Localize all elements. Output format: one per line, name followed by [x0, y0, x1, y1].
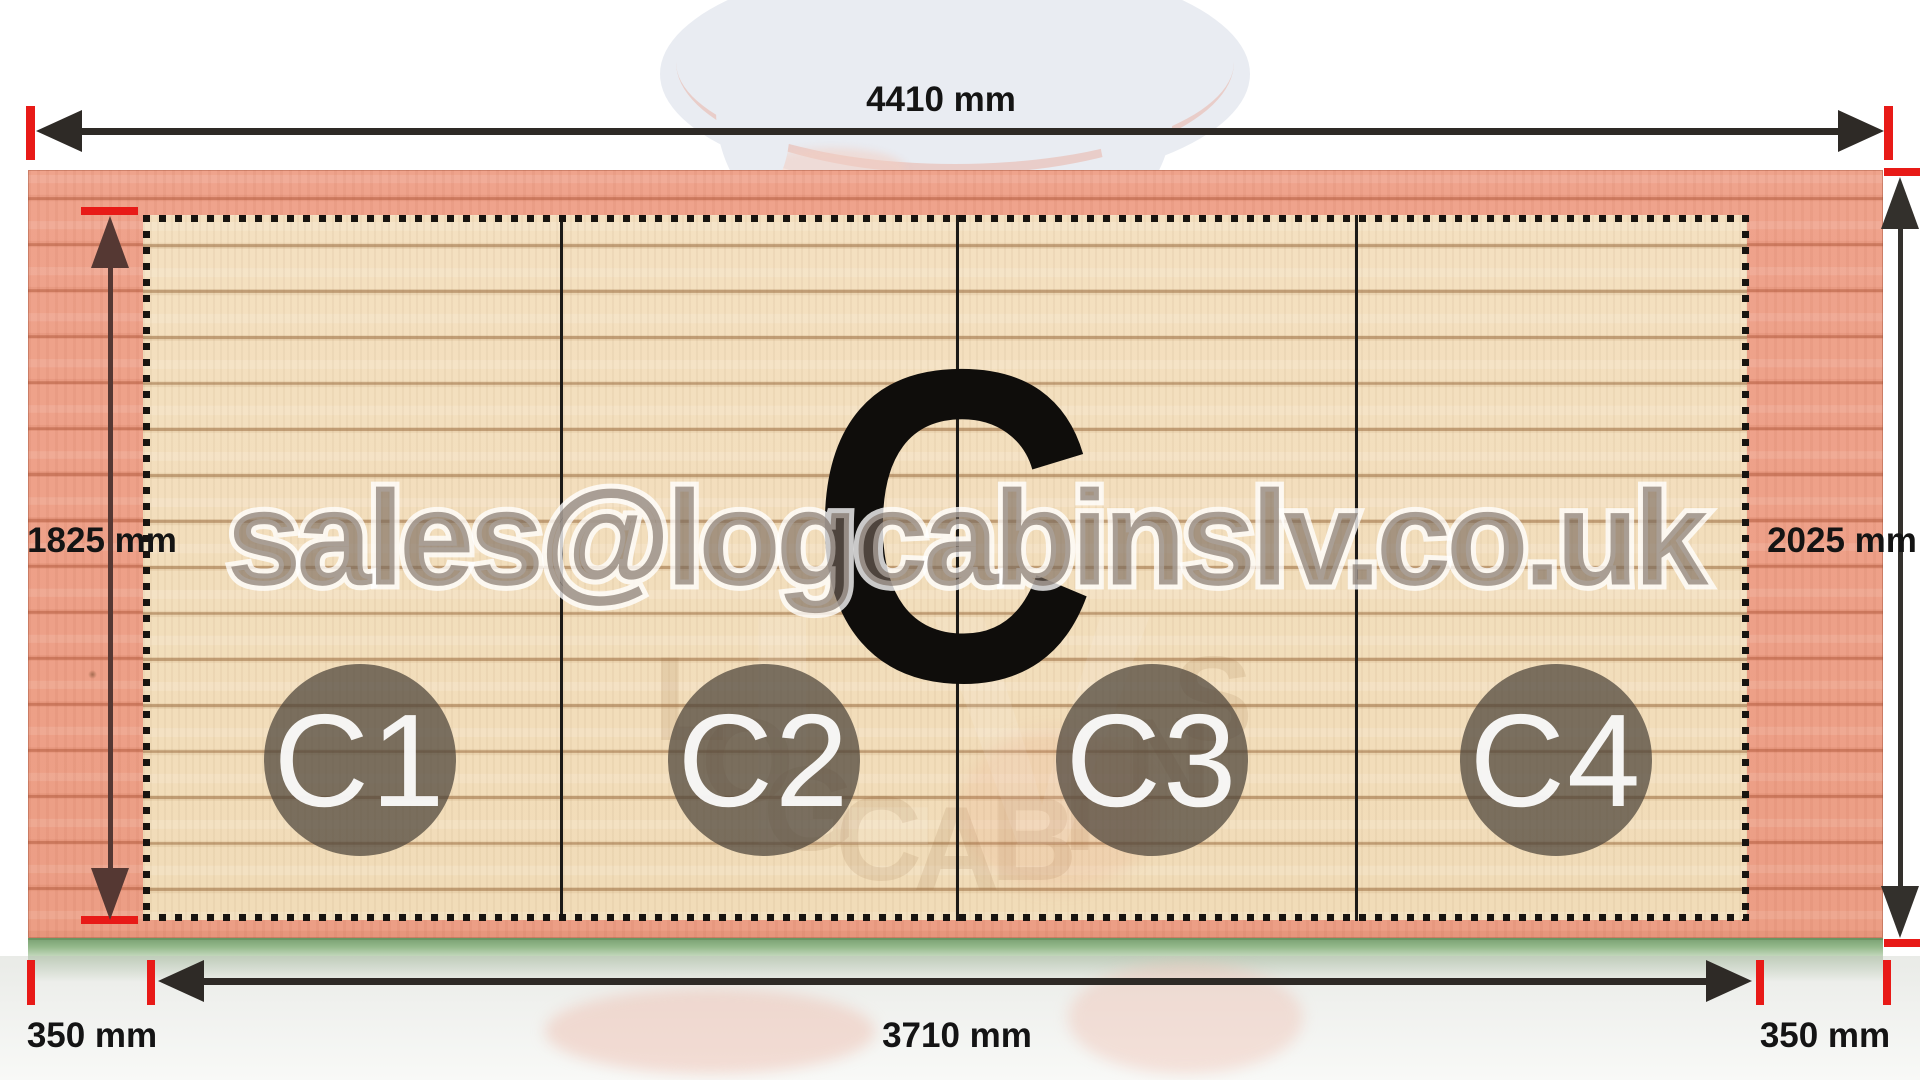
- section-badge-label: C2: [678, 685, 851, 836]
- section-badge-label: C1: [274, 685, 447, 836]
- dim-top: 4410 mm: [0, 0, 1920, 170]
- dim-right-arrowhead-up: [1881, 177, 1919, 229]
- section-badge-c2: C2: [668, 664, 860, 856]
- dim-left-tick-top: [81, 207, 138, 215]
- dim-right: 2025 mm: [1700, 0, 1920, 1080]
- dim-bottom-right-label: 350 mm: [1735, 1016, 1915, 1056]
- dim-left-label: 1825 mm: [18, 521, 186, 561]
- dim-left-line: [108, 240, 113, 890]
- section-badge-c3: C3: [1056, 664, 1248, 856]
- section-badge-label: C3: [1066, 685, 1239, 836]
- dim-left-arrowhead-down: [91, 868, 129, 920]
- cabin-wall-diagram: LOGCABINS LV C C1 C2 C3: [0, 0, 1920, 1080]
- section-divider: [1355, 215, 1358, 921]
- panel-label: C: [808, 304, 1097, 749]
- dim-bottom-tick-3: [1756, 960, 1764, 1005]
- dotted-border-bottom: [143, 914, 1749, 921]
- dotted-border-top: [143, 215, 1749, 222]
- dim-bottom-arrowhead-left: [158, 960, 204, 1002]
- wall-panel: LOGCABINS LV C C1 C2 C3: [28, 170, 1883, 938]
- dim-bottom-line: [180, 978, 1725, 985]
- section-badge-c1: C1: [264, 664, 456, 856]
- dim-right-arrowhead-down: [1881, 886, 1919, 938]
- dim-top-label: 4410 mm: [791, 80, 1091, 120]
- dim-right-label: 2025 mm: [1758, 521, 1920, 561]
- dim-right-tick-top: [1884, 168, 1920, 176]
- dim-bottom-left-label: 350 mm: [2, 1016, 182, 1056]
- dim-top-line: [60, 128, 1860, 135]
- dim-bottom-tick-2: [147, 960, 155, 1005]
- section-badge-c4: C4: [1460, 664, 1652, 856]
- dim-left: 1825 mm: [0, 0, 200, 1080]
- dim-bottom: 350 mm 3710 mm 350 mm: [0, 940, 1920, 1080]
- dim-bottom-label: 3710 mm: [807, 1016, 1107, 1056]
- dim-left-arrowhead-up: [91, 216, 129, 268]
- section-badge-label: C4: [1470, 685, 1643, 836]
- dim-bottom-tick-4: [1883, 960, 1891, 1005]
- dim-bottom-tick-1: [27, 960, 35, 1005]
- dim-bottom-arrowhead-right: [1706, 960, 1752, 1002]
- section-divider: [560, 215, 563, 921]
